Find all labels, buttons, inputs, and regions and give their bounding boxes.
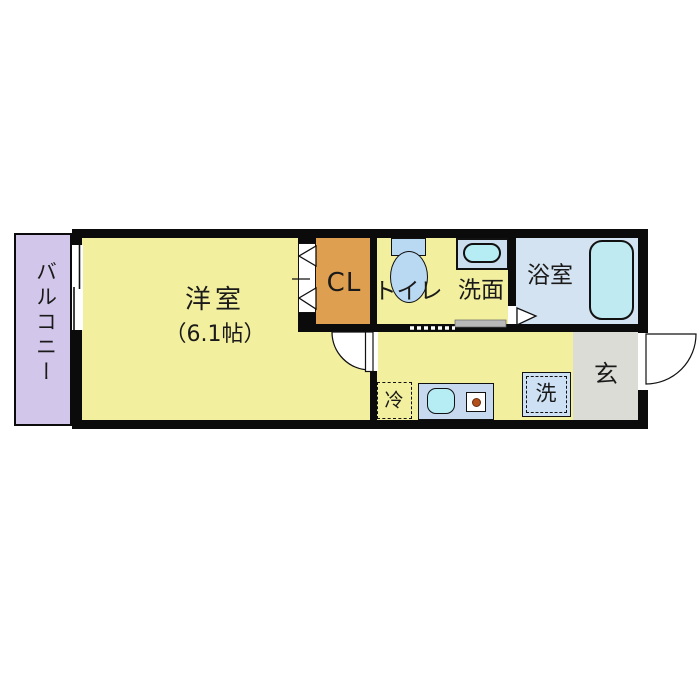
closet-label: CL: [327, 270, 362, 296]
entry-door-opening: [638, 333, 648, 390]
bathtub-icon: [589, 240, 634, 320]
toilet-label: トイレ: [374, 281, 443, 304]
balcony-window-icon: [71, 245, 83, 330]
sink-icon: [463, 243, 501, 263]
wall-bathroom-divider: [508, 238, 516, 306]
western-room-label: 洋室: [185, 287, 245, 313]
room-door-opening: [369, 332, 378, 371]
balcony-label: バルコニー: [35, 261, 56, 386]
wall-bottom: [72, 420, 648, 429]
floor-plan: バルコニー 洋室 （6.1帖） CL トイレ 洗面 浴室 玄 冷 洗: [0, 0, 700, 700]
refrigerator-label: 冷: [384, 392, 403, 411]
wall-top: [72, 229, 648, 238]
sink-icon: [427, 388, 455, 414]
washroom-label: 洗面: [458, 280, 504, 303]
wall-closet-stub-bottom: [298, 313, 316, 324]
entrance-label: 玄: [594, 362, 618, 386]
closet-folding-door-icon: [298, 243, 316, 313]
bathroom-label: 浴室: [527, 265, 573, 288]
bathroom-door-opening: [508, 306, 516, 324]
entrance-door-swing-arc: [646, 334, 696, 384]
washing-machine-label: 洗: [536, 384, 557, 405]
stove-burner-icon: [472, 398, 481, 407]
wall-middle: [298, 324, 648, 332]
western-room-size-label: （6.1帖）: [165, 324, 266, 346]
